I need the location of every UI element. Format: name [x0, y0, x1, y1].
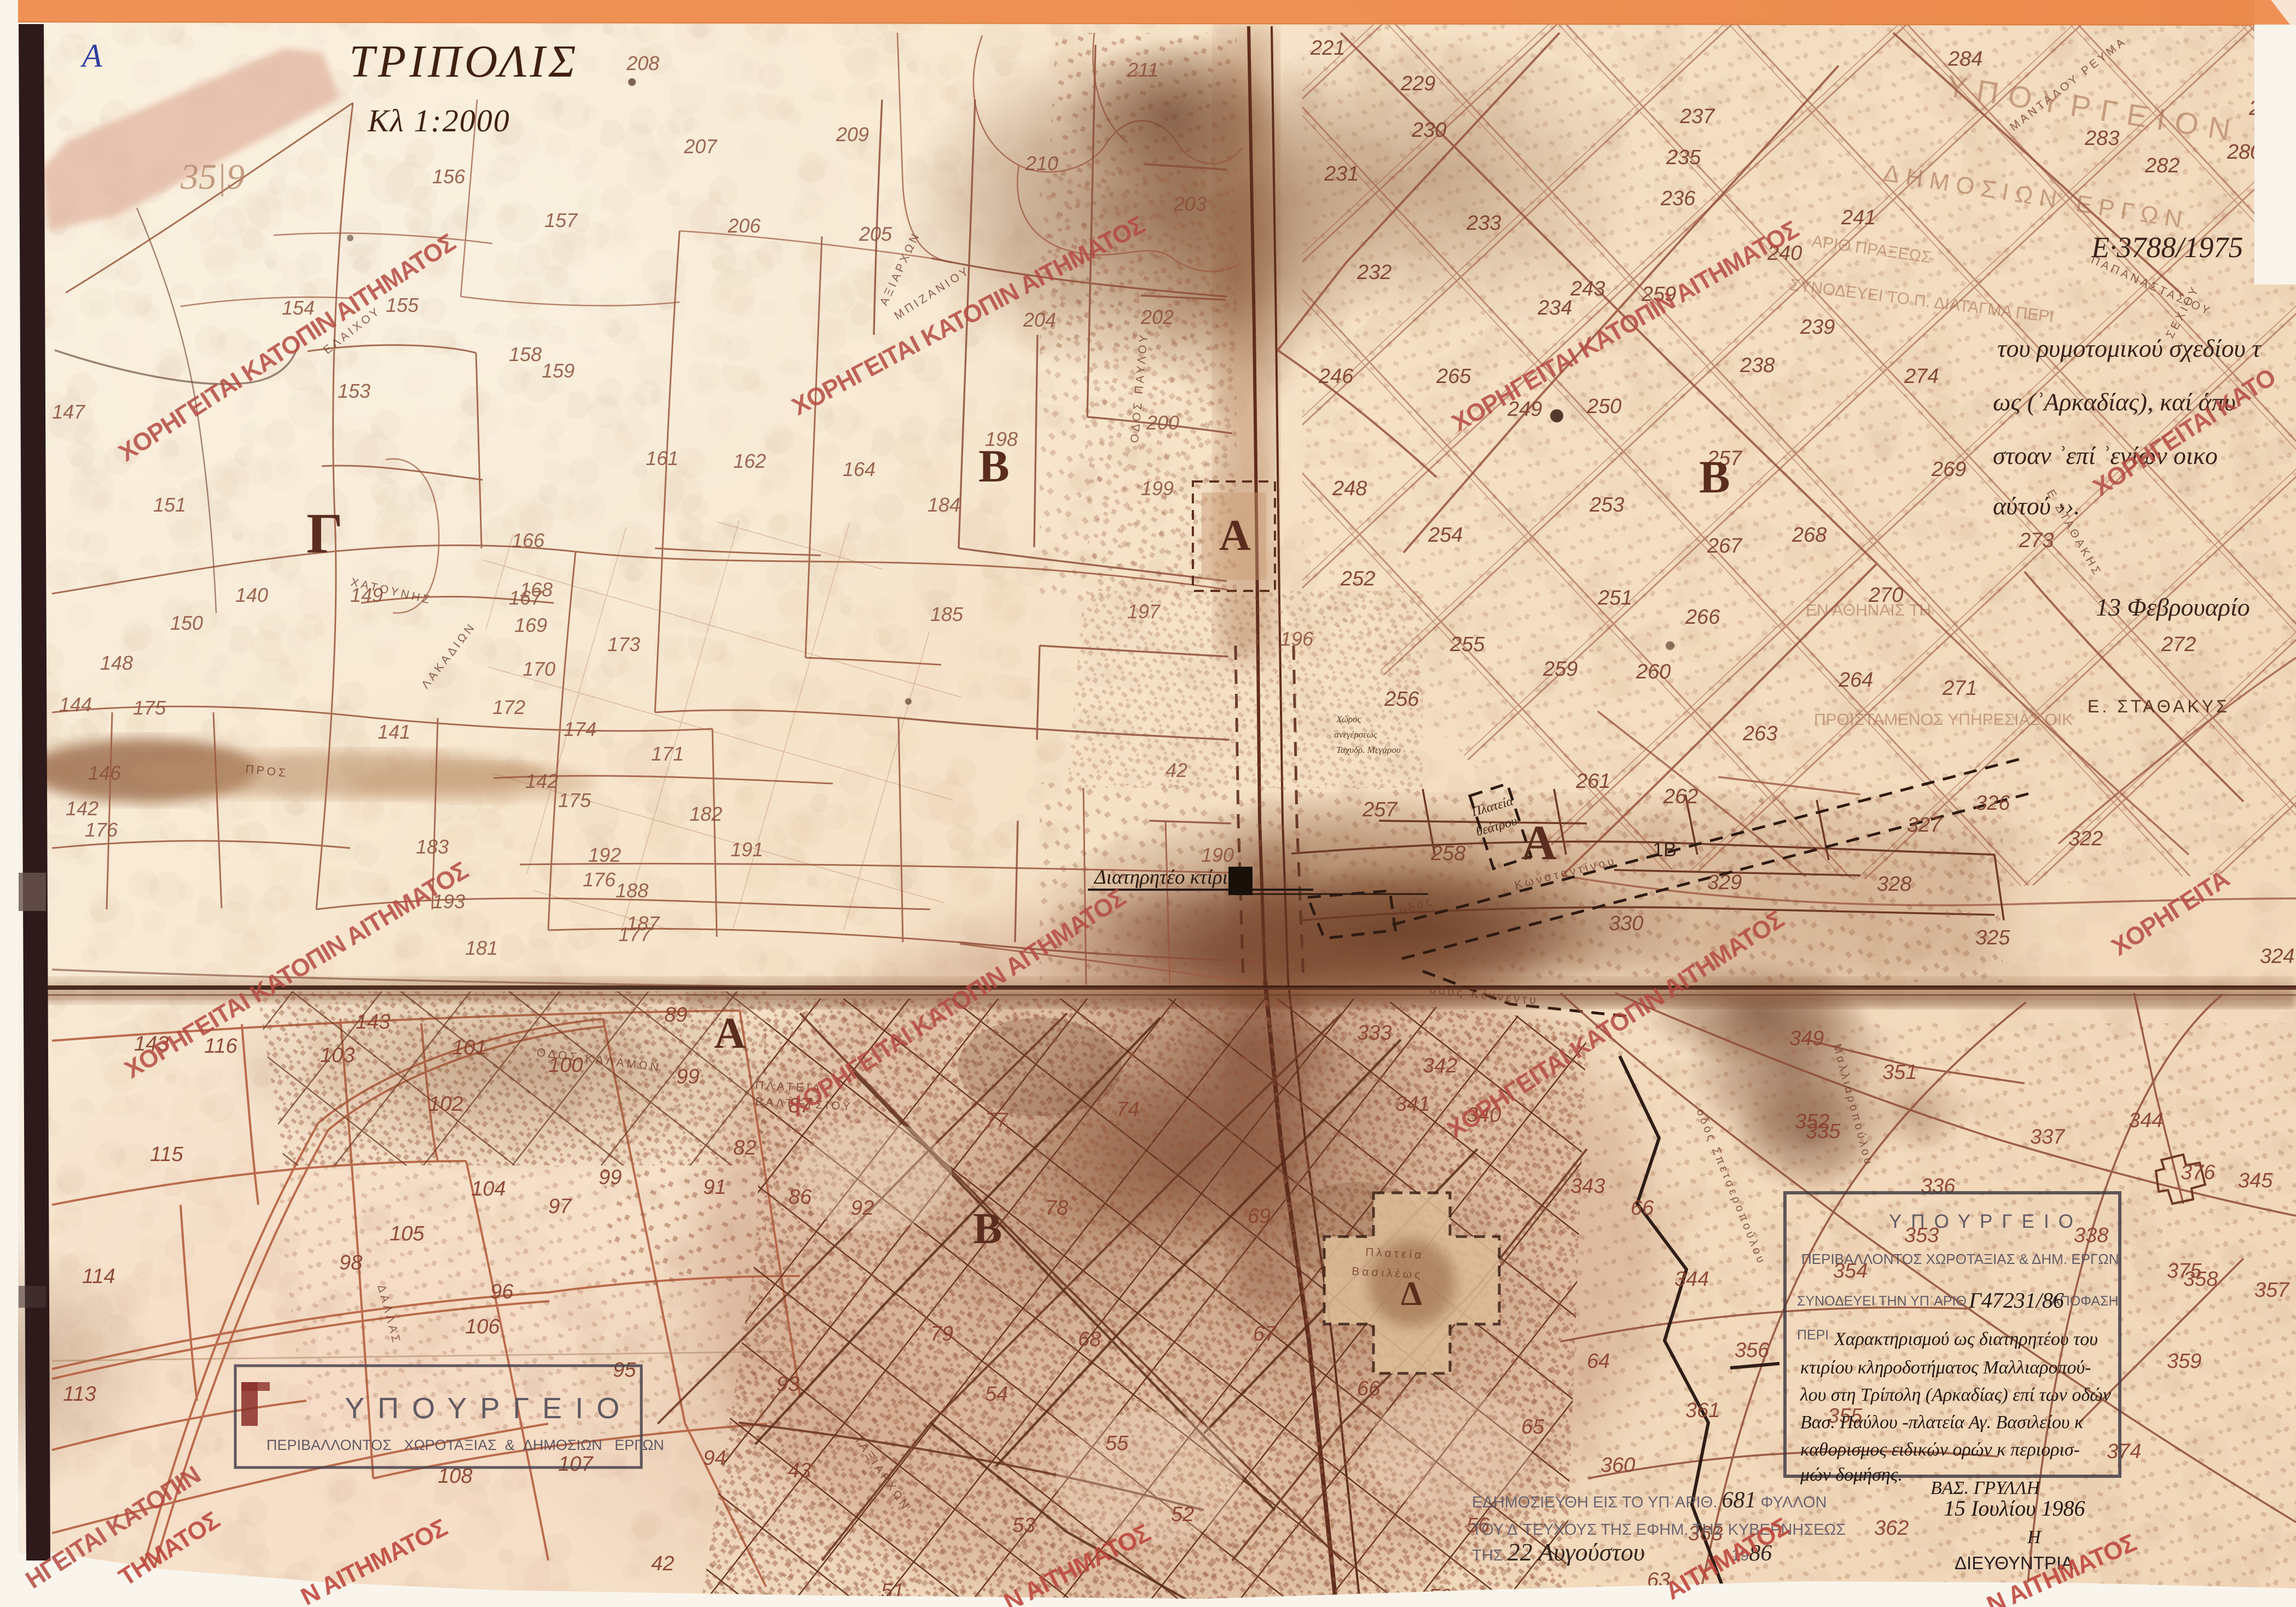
svg-text:322: 322 [2068, 827, 2103, 850]
svg-text:52: 52 [1171, 1503, 1194, 1526]
svg-text:καθορισμος ειδικών ορών κ περι: καθορισμος ειδικών ορών κ περιορισ- [1800, 1440, 2080, 1460]
svg-text:273: 273 [2019, 529, 2054, 552]
svg-text:175: 175 [133, 697, 166, 719]
svg-text:284: 284 [1947, 48, 1982, 71]
svg-text:192: 192 [588, 844, 621, 866]
svg-text:255: 255 [1450, 633, 1485, 656]
svg-text:A: A [1521, 816, 1557, 870]
svg-text:211: 211 [1127, 59, 1158, 81]
svg-text:171: 171 [651, 742, 684, 765]
svg-text:69: 69 [1248, 1205, 1271, 1228]
svg-text:A: A [80, 38, 102, 74]
svg-text:208: 208 [626, 52, 659, 74]
svg-text:204: 204 [1023, 309, 1056, 331]
svg-text:210: 210 [1025, 152, 1058, 175]
svg-text:54: 54 [985, 1383, 1008, 1406]
svg-text:200: 200 [1146, 411, 1179, 434]
svg-text:113: 113 [63, 1383, 96, 1406]
svg-text:E·3788/1975: E·3788/1975 [2091, 231, 2243, 264]
svg-text:B: B [978, 440, 1010, 492]
svg-text:155: 155 [386, 294, 419, 316]
svg-text:362: 362 [1874, 1517, 1909, 1540]
svg-text:79: 79 [930, 1322, 953, 1345]
svg-text:144: 144 [59, 693, 92, 716]
svg-text:164: 164 [843, 458, 876, 480]
svg-text:196: 196 [1280, 628, 1314, 650]
svg-text:344: 344 [1674, 1268, 1709, 1291]
svg-text:95: 95 [613, 1359, 636, 1382]
svg-text:143: 143 [356, 1011, 390, 1034]
svg-text:A: A [1219, 512, 1251, 560]
svg-text:238: 238 [1740, 354, 1775, 377]
svg-text:170: 170 [523, 658, 555, 680]
svg-text:359: 359 [2167, 1350, 2201, 1373]
svg-text:ΣΥΝΟΔΕΥΕΙ ΤΗΝ ΥΠʾΑΡΙΘ: ΣΥΝΟΔΕΥΕΙ ΤΗΝ ΥΠʾΑΡΙΘ [1797, 1293, 1967, 1309]
svg-text:αύτού ››.: αύτού ››. [1993, 492, 2080, 520]
svg-text:Γ47231/86: Γ47231/86 [1968, 1288, 2064, 1313]
svg-text:35|9: 35|9 [180, 157, 245, 197]
svg-text:197: 197 [1127, 600, 1161, 623]
svg-text:205: 205 [859, 223, 892, 245]
svg-text:53: 53 [1012, 1514, 1035, 1537]
svg-text:254: 254 [1428, 524, 1463, 547]
svg-text:229: 229 [1400, 72, 1435, 95]
svg-text:172: 172 [492, 696, 525, 718]
svg-text:173: 173 [607, 633, 640, 655]
svg-text:107: 107 [558, 1453, 594, 1476]
svg-text:157: 157 [544, 209, 578, 231]
svg-text:161: 161 [646, 447, 679, 469]
svg-text:Κλ 1:2000: Κλ 1:2000 [367, 103, 511, 138]
svg-text:151: 151 [153, 494, 186, 516]
svg-text:105: 105 [390, 1222, 425, 1245]
svg-text:230: 230 [1411, 119, 1446, 142]
svg-text:15 Ιουλίου 1986: 15 Ιουλίου 1986 [1944, 1496, 2085, 1521]
svg-text:169: 169 [514, 614, 547, 636]
svg-text:352: 352 [1795, 1110, 1829, 1133]
svg-text:337: 337 [2030, 1126, 2066, 1148]
svg-text:235: 235 [1666, 146, 1701, 169]
svg-text:92: 92 [851, 1197, 874, 1220]
svg-text:327: 327 [1907, 814, 1943, 837]
svg-text:65: 65 [1521, 1415, 1545, 1438]
svg-text:243: 243 [1570, 277, 1605, 300]
svg-text:246: 246 [1318, 365, 1354, 388]
svg-text:274: 274 [1904, 365, 1939, 388]
svg-text:252: 252 [1340, 567, 1375, 590]
svg-text:199: 199 [1141, 477, 1174, 500]
svg-text:190: 190 [1201, 844, 1234, 866]
svg-text:341: 341 [1395, 1093, 1430, 1116]
svg-text:344: 344 [2129, 1109, 2163, 1132]
svg-text:λου στη Τρίπολη (Αρκαδίας) επί: λου στη Τρίπολη (Αρκαδίας) επί των οδών [1800, 1385, 2112, 1405]
svg-text:360: 360 [1601, 1454, 1635, 1477]
svg-text:168: 168 [520, 578, 553, 601]
svg-text:231: 231 [1324, 163, 1359, 185]
svg-text:82: 82 [733, 1136, 756, 1159]
svg-text:262: 262 [1663, 785, 1698, 808]
svg-text:203: 203 [1173, 193, 1207, 215]
svg-text:66: 66 [1357, 1377, 1381, 1400]
svg-text:ΠΡΟΙΣΤΑΜΕΝΟΣ ΥΠΗΡΕΣΙΑΣ ΟΙΚ: ΠΡΟΙΣΤΑΜΕΝΟΣ ΥΠΗΡΕΣΙΑΣ ΟΙΚ [1814, 711, 2073, 729]
svg-text:356: 356 [1735, 1339, 1770, 1362]
svg-text:ΠΕΡΙ: ΠΕΡΙ [1797, 1327, 1829, 1343]
svg-text:106: 106 [465, 1315, 500, 1338]
svg-text:77: 77 [985, 1109, 1009, 1132]
svg-text:333: 333 [1357, 1022, 1391, 1045]
svg-text:330: 330 [1609, 912, 1643, 935]
svg-text:174: 174 [564, 718, 596, 740]
svg-text:99: 99 [676, 1065, 699, 1088]
svg-text:89: 89 [664, 1003, 687, 1026]
svg-text:258: 258 [1430, 842, 1465, 865]
svg-text:13 Φεβρουαρίο: 13 Φεβρουαρίο [2096, 593, 2250, 621]
svg-text:67: 67 [1253, 1322, 1277, 1345]
svg-text:Χώρος: Χώρος [1336, 714, 1361, 724]
svg-text:283: 283 [2084, 127, 2119, 150]
svg-text:185: 185 [930, 603, 964, 625]
svg-text:345: 345 [2238, 1169, 2273, 1192]
svg-text:357: 357 [2254, 1279, 2290, 1302]
svg-text:251: 251 [1597, 587, 1632, 610]
svg-text:187: 187 [627, 912, 660, 935]
svg-text:248: 248 [1332, 477, 1367, 500]
svg-text:98: 98 [339, 1251, 362, 1274]
svg-text:162: 162 [733, 450, 766, 472]
svg-text:257: 257 [1362, 798, 1398, 821]
svg-text:326: 326 [1975, 792, 2010, 815]
svg-text:93: 93 [776, 1373, 799, 1396]
svg-text:267: 267 [1707, 535, 1743, 558]
svg-text:261: 261 [1575, 770, 1610, 793]
svg-text:Γ: Γ [306, 501, 343, 565]
svg-text:ΒΑΣ. ΓΡΥΛΛΗ: ΒΑΣ. ΓΡΥΛΛΗ [1930, 1478, 2042, 1498]
svg-text:329: 329 [1707, 871, 1742, 894]
svg-text:ΠΕΡΙΒΑΛΛΟΝΤΟΣ ΧΩΡΟΤΑΞΙΑΣ & ΔΗΜ: ΠΕΡΙΒΑΛΛΟΝΤΟΣ ΧΩΡΟΤΑΞΙΑΣ & ΔΗΜ. ΕΡΓΩΝ [1801, 1251, 2119, 1267]
svg-text:A: A [714, 1010, 746, 1058]
svg-text:148: 148 [100, 652, 133, 674]
svg-text:140: 140 [235, 584, 268, 606]
svg-text:269: 269 [1931, 458, 1966, 481]
svg-text:232: 232 [1356, 261, 1391, 284]
svg-text:153: 153 [338, 380, 370, 402]
svg-text:181: 181 [465, 937, 498, 959]
svg-text:182: 182 [689, 803, 722, 825]
svg-text:209: 209 [836, 123, 869, 146]
svg-text:μών δομήσης.: μών δομήσης. [1800, 1465, 1903, 1485]
svg-text:ΥΠΟΥΡΓΕΙΟ: ΥΠΟΥΡΓΕΙΟ [345, 1392, 633, 1425]
svg-text:102: 102 [428, 1093, 463, 1116]
svg-text:42: 42 [651, 1552, 674, 1575]
svg-text:349: 349 [1789, 1027, 1824, 1050]
svg-text:361: 361 [1685, 1399, 1720, 1422]
svg-text:256: 256 [1384, 688, 1419, 711]
svg-text:176: 176 [583, 868, 616, 891]
svg-text:183: 183 [416, 836, 449, 858]
svg-text:97: 97 [548, 1195, 572, 1218]
svg-text:271: 271 [1942, 677, 1977, 700]
svg-text:253: 253 [1589, 494, 1624, 517]
svg-text:114: 114 [82, 1265, 115, 1288]
svg-text:Ταχυδρ. Μεγάρου: Ταχυδρ. Μεγάρου [1336, 745, 1401, 755]
svg-text:ΠΕΡΙΒΑΛΛΟΝΤΟΣ ΧΩΡΟΤΑΞΙΑΣ &: ΠΕΡΙΒΑΛΛΟΝΤΟΣ ΧΩΡΟΤΑΞΙΑΣ & ΔΗΜΟΣΙΩΝ ΕΡΓΩ… [266, 1437, 664, 1453]
svg-text:351: 351 [1882, 1061, 1917, 1084]
svg-text:159: 159 [542, 359, 575, 382]
svg-text:B: B [1699, 451, 1730, 503]
svg-text:141: 141 [378, 721, 410, 743]
svg-text:233: 233 [1466, 212, 1501, 235]
svg-text:207: 207 [683, 135, 718, 158]
svg-text:147: 147 [52, 401, 86, 423]
svg-text:184: 184 [927, 494, 960, 516]
svg-text:κτιρίου κληροδοτήματος Μαλλιαρ: κτιρίου κληροδοτήματος Μαλλιαροπού- [1800, 1357, 2091, 1378]
svg-text:64: 64 [1587, 1350, 1610, 1373]
svg-text:ΤΡΙΠΟΛΙΣ: ΤΡΙΠΟΛΙΣ [349, 36, 579, 87]
svg-text:Η: Η [2027, 1527, 2042, 1547]
svg-text:103: 103 [320, 1044, 355, 1067]
svg-text:150: 150 [170, 612, 203, 634]
svg-text:376: 376 [2181, 1161, 2216, 1184]
svg-text:ΥΠΟΥΡΓΕΙΟ: ΥΠΟΥΡΓΕΙΟ [1889, 1211, 2083, 1232]
svg-text:96: 96 [490, 1280, 514, 1303]
svg-text:188: 188 [616, 879, 648, 902]
svg-text:259: 259 [1543, 658, 1578, 681]
svg-text:175: 175 [558, 789, 592, 811]
svg-text:68: 68 [1078, 1328, 1101, 1351]
svg-text:206: 206 [727, 214, 761, 237]
svg-text:43: 43 [788, 1459, 811, 1482]
svg-text:237: 237 [1679, 105, 1715, 128]
svg-text:241: 241 [1841, 206, 1876, 229]
svg-text:234: 234 [1537, 297, 1572, 320]
svg-text:272: 272 [2161, 633, 2196, 656]
svg-text:250: 250 [1586, 395, 1621, 418]
svg-text:239: 239 [1800, 316, 1835, 339]
svg-text:375: 375 [2167, 1260, 2202, 1283]
svg-text:Χαρακτηρισμού ως διατηρητέου τ: Χαρακτηρισμού ως διατηρητέου του [1833, 1329, 2098, 1349]
svg-text:B: B [973, 1205, 1002, 1253]
svg-text:343: 343 [1570, 1175, 1605, 1198]
svg-text:ανεγέρσεως: ανεγέρσεως [1334, 729, 1377, 740]
svg-text:55: 55 [1105, 1432, 1129, 1455]
svg-text:66: 66 [1631, 1197, 1654, 1220]
svg-text:78: 78 [1045, 1197, 1068, 1220]
svg-text:265: 265 [1436, 365, 1471, 388]
svg-text:91: 91 [703, 1176, 726, 1199]
svg-text:Βασ. Παύλου -πλατεία Αγ. Βασιλ: Βασ. Παύλου -πλατεία Αγ. Βασιλείου κ [1800, 1412, 2084, 1432]
svg-text:263: 263 [1742, 722, 1777, 745]
svg-text:374: 374 [2107, 1440, 2141, 1463]
svg-text:42: 42 [1166, 759, 1187, 781]
svg-text:101: 101 [452, 1036, 486, 1059]
svg-text:158: 158 [509, 343, 542, 366]
svg-text:115: 115 [150, 1143, 183, 1166]
svg-text:Δ: Δ [1401, 1275, 1422, 1313]
svg-text:74: 74 [1116, 1098, 1139, 1121]
svg-text:99: 99 [599, 1166, 622, 1189]
svg-text:ΕΝ ΑΘΗΝΑΙΣ ΤΗ: ΕΝ ΑΘΗΝΑΙΣ ΤΗ [1806, 601, 1931, 619]
svg-text:191: 191 [730, 838, 763, 861]
svg-text:176: 176 [85, 819, 118, 841]
svg-text:156: 156 [432, 165, 466, 188]
svg-text:221: 221 [1310, 37, 1345, 60]
svg-text:282: 282 [2144, 154, 2179, 177]
svg-text:146: 146 [88, 762, 121, 784]
svg-text:202: 202 [1140, 306, 1174, 328]
svg-text:104: 104 [471, 1177, 506, 1200]
svg-text:142: 142 [525, 770, 558, 792]
svg-text:324: 324 [2260, 945, 2294, 968]
svg-text:166: 166 [512, 529, 545, 552]
svg-text:του ρυμοτομικού σχεδίου τ: του ρυμοτομικού σχεδίου τ [1997, 334, 2262, 362]
svg-text:266: 266 [1685, 606, 1720, 629]
svg-text:142: 142 [66, 797, 98, 820]
svg-text:236: 236 [1660, 187, 1696, 210]
svg-text:Ε. ΣΤΑΘΑΚΥΣ: Ε. ΣΤΑΘΑΚΥΣ [2088, 697, 2230, 716]
svg-text:86: 86 [788, 1186, 812, 1209]
svg-text:325: 325 [1975, 926, 2010, 949]
svg-text:268: 268 [1791, 524, 1827, 547]
svg-text:94: 94 [703, 1447, 726, 1470]
svg-text:328: 328 [1877, 873, 1911, 896]
svg-text:260: 260 [1636, 660, 1671, 683]
svg-text:342: 342 [1423, 1054, 1457, 1077]
svg-text:264: 264 [1838, 669, 1873, 692]
